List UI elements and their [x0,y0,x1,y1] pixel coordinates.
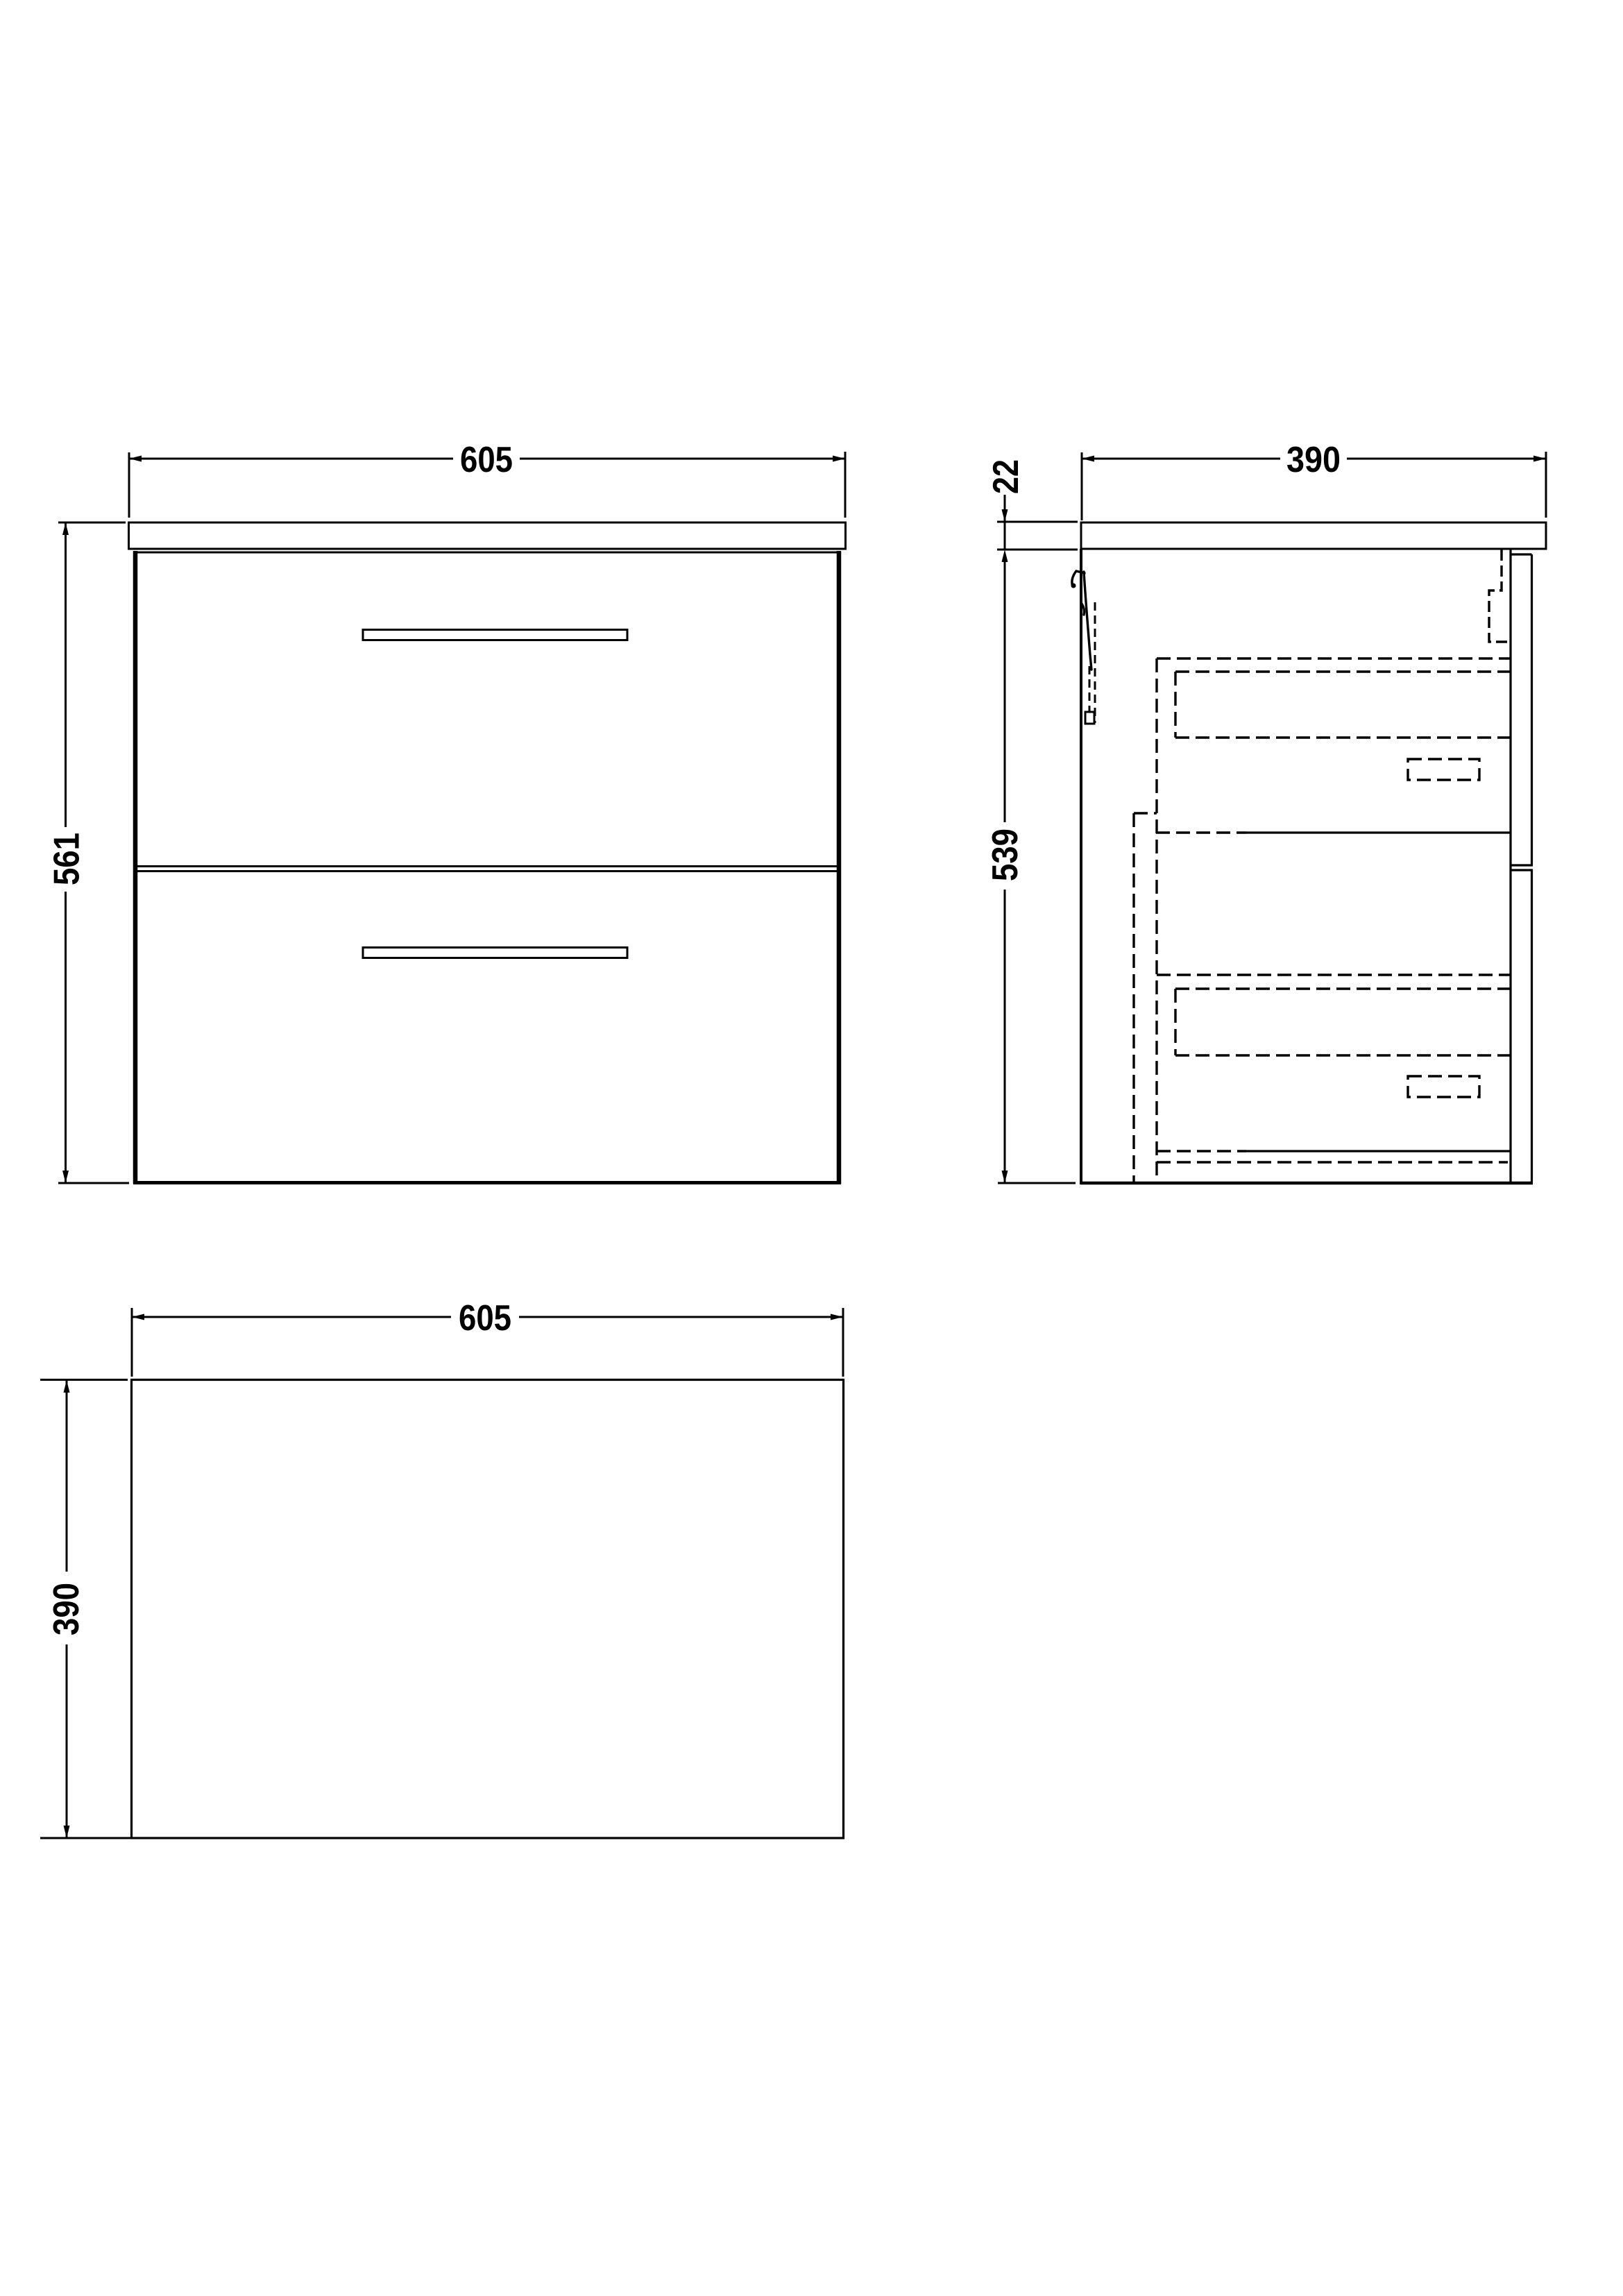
svg-text:605: 605 [459,1298,511,1338]
svg-text:390: 390 [46,1583,87,1635]
svg-text:605: 605 [460,440,513,480]
svg-text:539: 539 [985,828,1026,881]
svg-text:22: 22 [986,459,1026,494]
svg-text:561: 561 [47,833,87,885]
svg-text:390: 390 [1286,440,1341,480]
